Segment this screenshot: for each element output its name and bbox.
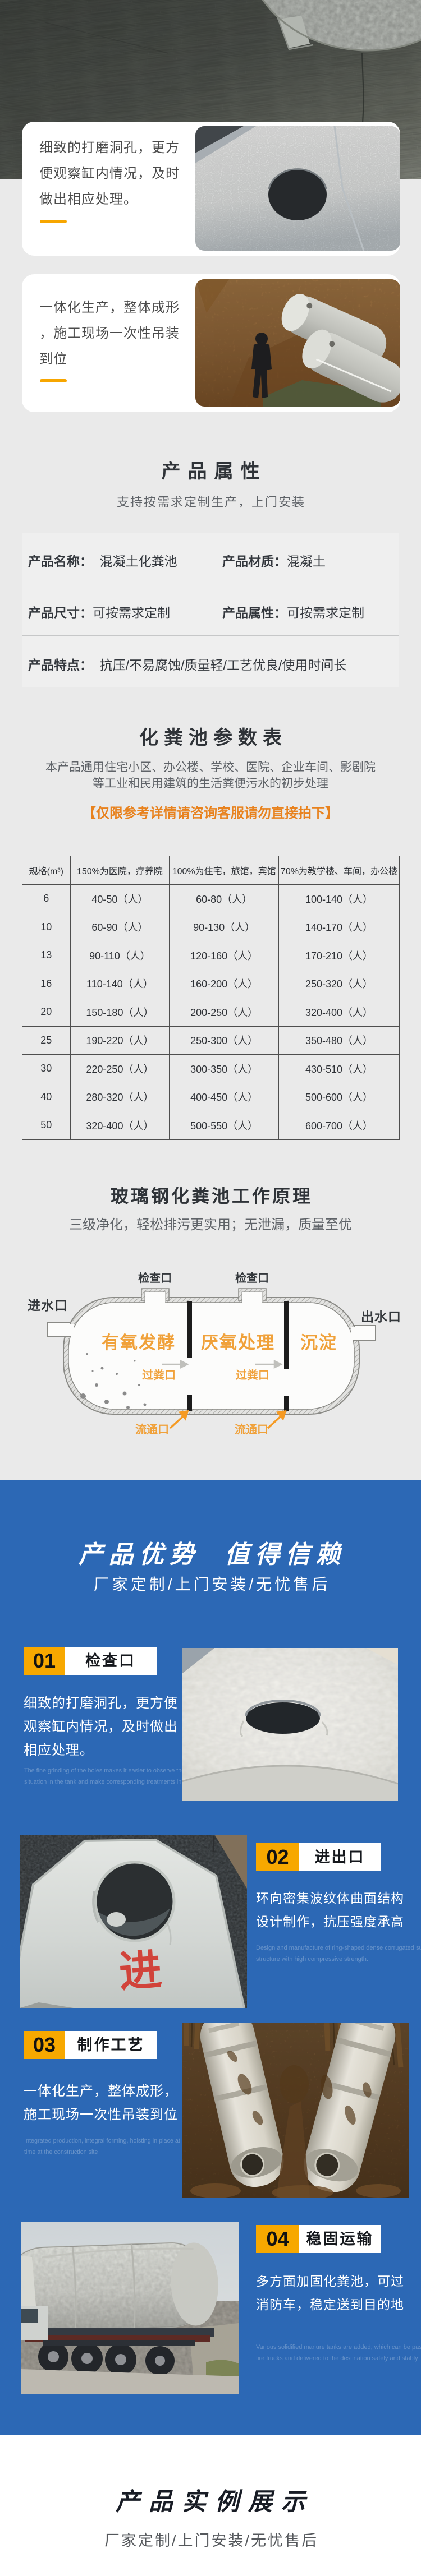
svg-text:进: 进 <box>117 1946 163 1996</box>
svg-text:流通口: 流通口 <box>235 1423 268 1436</box>
svg-text:检查口: 检查口 <box>138 1271 172 1285</box>
svg-text:检查口: 检查口 <box>235 1271 269 1285</box>
svg-text:进水口: 进水口 <box>28 1298 68 1313</box>
svg-text:出水口: 出水口 <box>361 1309 401 1324</box>
svg-text:流通口: 流通口 <box>135 1423 169 1436</box>
svg-text:厌氧处理: 厌氧处理 <box>201 1333 275 1352</box>
svg-text:有氧发酵: 有氧发酵 <box>102 1333 176 1352</box>
svg-text:过粪口: 过粪口 <box>142 1368 176 1382</box>
svg-text:过粪口: 过粪口 <box>236 1368 269 1382</box>
svg-text:沉淀: 沉淀 <box>300 1333 337 1352</box>
